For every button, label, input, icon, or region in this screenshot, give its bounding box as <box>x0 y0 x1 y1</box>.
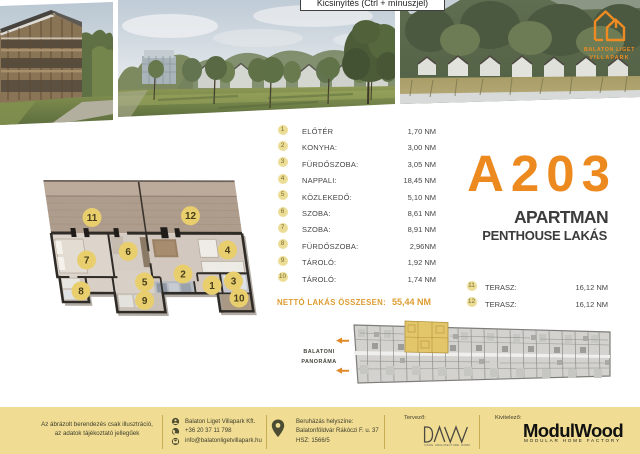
svg-text:9: 9 <box>142 296 148 307</box>
svg-text:11: 11 <box>87 213 98 224</box>
svg-text:4: 4 <box>225 246 231 257</box>
svg-text:1: 1 <box>209 281 215 292</box>
svg-text:12: 12 <box>185 211 197 222</box>
svg-text:3: 3 <box>231 277 237 288</box>
svg-text:5: 5 <box>142 278 148 289</box>
svg-text:6: 6 <box>125 247 131 258</box>
svg-text:10: 10 <box>233 294 245 305</box>
svg-text:7: 7 <box>84 256 90 267</box>
svg-text:2: 2 <box>180 270 186 281</box>
svg-text:8: 8 <box>78 287 84 298</box>
svg-text:DSGN. ARCHITECTURE. WORKS.: DSGN. ARCHITECTURE. WORKS. <box>425 443 471 447</box>
svg-text:BALATON LIGET: BALATON LIGET <box>584 47 635 53</box>
svg-text:VILLAPARK: VILLAPARK <box>589 55 629 61</box>
